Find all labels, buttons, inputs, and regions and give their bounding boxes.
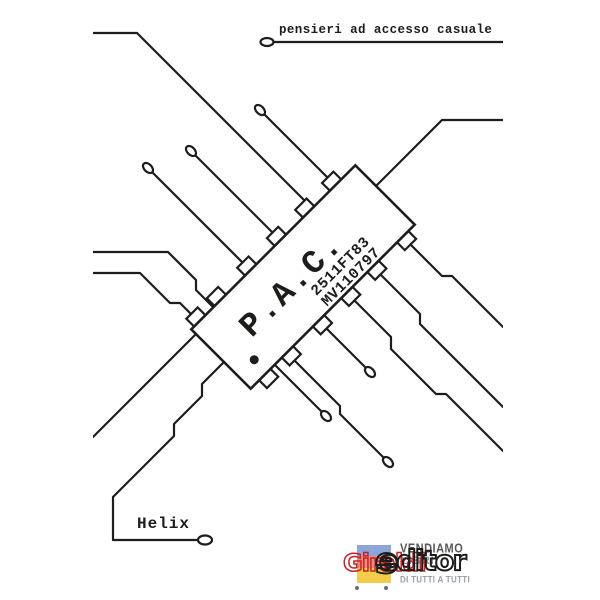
publisher-brand-black: editore <box>379 544 399 577</box>
chip: P.A.C. 2511FT83 MV110797 <box>183 157 422 396</box>
author-name: Helix <box>137 515 190 533</box>
trace-terminal-icon <box>261 38 274 46</box>
publisher-brand-black-final: e <box>376 548 399 576</box>
cover-title: pensieri ad accesso casuale <box>279 23 492 37</box>
trace <box>274 364 326 416</box>
trace <box>93 252 214 308</box>
trace-terminal-icon <box>381 455 395 469</box>
trace <box>113 360 226 540</box>
circuit-art: P.A.C. 2511FT83 MV110797 <box>0 0 600 600</box>
trace-terminal-icon <box>319 409 333 423</box>
logo-dot-icon <box>384 586 388 590</box>
trace-terminal-icon <box>253 103 267 117</box>
trace <box>260 110 336 186</box>
trace <box>402 236 503 327</box>
trace-terminal-icon <box>184 144 198 158</box>
logo-dot-icon <box>355 586 359 590</box>
trace <box>93 33 313 209</box>
trace <box>93 334 196 437</box>
book-cover: P.A.C. 2511FT83 MV110797 pensieri ad acc… <box>0 0 600 600</box>
trace-terminal-icon <box>363 365 377 379</box>
trace <box>148 168 251 271</box>
trace <box>93 273 199 322</box>
trace <box>376 120 503 186</box>
publisher-logo: VENDIAMO LIBRI Giraldi editore DI TUTTI … <box>343 542 505 594</box>
trace-terminal-icon <box>198 536 212 545</box>
trace-terminal-icon <box>141 161 155 175</box>
